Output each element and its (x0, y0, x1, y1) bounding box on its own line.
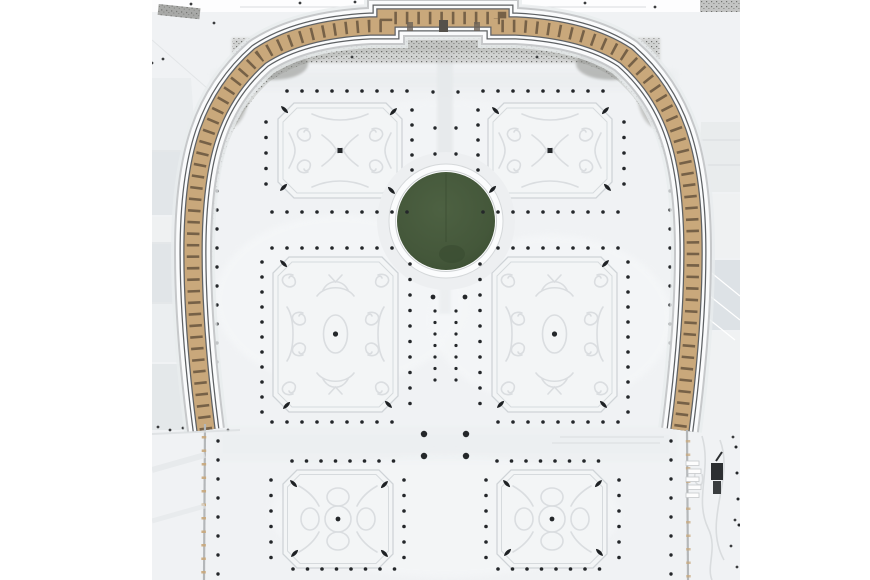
cross-path (216, 428, 676, 460)
central-door (439, 20, 448, 32)
tree-dot (669, 572, 672, 575)
tree-dot (511, 246, 515, 250)
tree-dot (260, 395, 264, 399)
tree-dot (539, 459, 543, 463)
tree-dot (390, 210, 394, 214)
tree-dot (433, 367, 436, 370)
tree-dot (402, 540, 406, 544)
tree-dot (264, 151, 268, 155)
tree-dot (410, 108, 414, 112)
tree-dot (478, 324, 482, 328)
tree-dot (478, 340, 482, 344)
tree-dot (348, 459, 352, 463)
tree-dot (586, 246, 590, 250)
tree-dot (556, 420, 560, 424)
tree-dot (270, 210, 274, 214)
ground-speck (299, 2, 302, 5)
tree-dot (478, 355, 482, 359)
tree-dot (571, 420, 575, 424)
aerial-photo-canvas (0, 0, 870, 580)
tree-dot (738, 524, 741, 527)
tree-dot (622, 136, 626, 140)
tree-dot (511, 420, 515, 424)
tree-dot (216, 572, 219, 575)
tree-dot (330, 246, 334, 250)
tree-dot (568, 459, 572, 463)
tree-dot (586, 420, 590, 424)
parterre-bed-bottom-right (497, 470, 607, 568)
tree-dot (569, 567, 573, 571)
tree-dot (484, 478, 488, 482)
tree-dot (270, 246, 274, 250)
tree-dot (478, 371, 482, 375)
tree-dot (622, 182, 626, 186)
tree-dot (300, 210, 304, 214)
tree-dot (433, 126, 436, 129)
tree-dot (390, 420, 394, 424)
tree-dot (478, 262, 482, 266)
tree-dot (405, 210, 409, 214)
tree-dot (300, 420, 304, 424)
ground-speck (584, 2, 587, 5)
tree-dot (260, 380, 264, 384)
tree-dot (478, 293, 482, 297)
ground-speck (536, 56, 539, 59)
tree-dot (433, 152, 436, 155)
tree-dot (360, 246, 364, 250)
ground-speck (162, 58, 165, 61)
tree-dot (408, 340, 412, 344)
tree-dot (433, 378, 436, 381)
roof-service-strip (700, 0, 740, 12)
tree-dot (300, 89, 304, 93)
tree-dot (601, 89, 605, 93)
tree-dot (216, 515, 219, 518)
tree-dot (526, 89, 530, 93)
tree-dot (496, 246, 500, 250)
tree-dot (378, 567, 382, 571)
tree-dot (484, 556, 488, 560)
tree-dot (260, 410, 264, 414)
tree-dot (476, 153, 480, 157)
tree-dot (260, 365, 264, 369)
tree-dot (526, 246, 530, 250)
tree-dot (264, 120, 268, 124)
tree-dot (402, 494, 406, 498)
tree-dot (526, 210, 530, 214)
tree-dot (541, 246, 545, 250)
tree-dot (269, 494, 273, 498)
bed-center-marker (552, 331, 557, 336)
tree-dot (216, 439, 219, 442)
tree-dot (264, 136, 268, 140)
tree-dot (669, 534, 672, 537)
tree-dot (626, 305, 630, 309)
tree-dot (571, 89, 575, 93)
tree-dot (408, 371, 412, 375)
tree-dot (626, 260, 630, 264)
tree-dot (496, 420, 500, 424)
tree-dot (269, 525, 273, 529)
tree-dot (408, 278, 412, 282)
tree-dot (375, 210, 379, 214)
tree-dot (360, 89, 364, 93)
tree-dot (345, 89, 349, 93)
pond-dark-patch (439, 245, 465, 263)
tree-dot (330, 420, 334, 424)
tree-dot (315, 246, 319, 250)
tree-dot (216, 458, 219, 461)
tree-dot (375, 89, 379, 93)
tree-dot (454, 321, 457, 324)
tree-dot (454, 367, 457, 370)
tree-dot (433, 344, 436, 347)
tree-dot (260, 260, 264, 264)
ground-speck (151, 62, 154, 65)
tree-dot (476, 108, 480, 112)
tree-dot (586, 210, 590, 214)
tree-dot (736, 472, 739, 475)
tree-dot (481, 89, 485, 93)
bed-center-marker (338, 148, 343, 153)
tree-dot (433, 355, 436, 358)
tree-dot (363, 459, 367, 463)
ground-speck (732, 436, 735, 439)
bed-center-marker (336, 517, 341, 522)
tree-dot (421, 431, 427, 437)
parterre-bed-bottom-left (283, 470, 393, 568)
tree-dot (511, 89, 515, 93)
tree-dot (264, 182, 268, 186)
tree-dot (260, 305, 264, 309)
tree-dot (377, 459, 381, 463)
bed-center-marker (550, 517, 555, 522)
tree-dot (616, 420, 620, 424)
tree-dot (616, 210, 620, 214)
tree-dot (269, 556, 273, 560)
tree-dot (345, 246, 349, 250)
tree-dot (215, 246, 218, 249)
tree-dot (597, 459, 601, 463)
tree-dot (431, 90, 434, 93)
tree-dot (216, 477, 219, 480)
tree-dot (496, 89, 500, 93)
tree-dot (290, 459, 294, 463)
ground-speck (213, 22, 216, 25)
tree-dot (264, 167, 268, 171)
tree-dot (393, 567, 397, 571)
tree-dot (484, 509, 488, 513)
tree-dot (617, 525, 621, 529)
tree-dot (626, 365, 630, 369)
tree-dot (463, 453, 469, 459)
tree-dot (408, 386, 412, 390)
tree-dot (617, 509, 621, 513)
tree-dot (405, 89, 409, 93)
tree-dot (269, 478, 273, 482)
tree-dot (454, 378, 457, 381)
tree-dot (408, 355, 412, 359)
tree-dot (481, 210, 485, 214)
tree-dot (525, 567, 529, 571)
tree-dot (408, 262, 412, 266)
tree-dot (571, 210, 575, 214)
tree-dot (553, 459, 557, 463)
tree-dot (390, 89, 394, 93)
tree-dot (541, 210, 545, 214)
tree-dot (511, 567, 515, 571)
tree-dot (285, 246, 289, 250)
tree-dot (540, 567, 544, 571)
tree-dot (526, 420, 530, 424)
tree-dot (476, 138, 480, 142)
tree-dot (454, 332, 457, 335)
tree-dot (285, 420, 289, 424)
tree-dot (364, 567, 368, 571)
tree-dot (484, 525, 488, 529)
tree-dot (669, 439, 672, 442)
tree-dot (454, 355, 457, 358)
bed-center-marker (548, 148, 553, 153)
tree-dot (300, 246, 304, 250)
ground-speck (736, 566, 739, 569)
tree-dot (626, 380, 630, 384)
tree-dot (291, 567, 295, 571)
tree-dot (601, 210, 605, 214)
tree-dot (408, 402, 412, 406)
tree-dot (669, 477, 672, 480)
tree-dot (345, 210, 349, 214)
tree-dot (260, 290, 264, 294)
tree-dot (484, 540, 488, 544)
ground-speck (148, 427, 151, 430)
tree-dot (215, 265, 218, 268)
tree-dot (601, 420, 605, 424)
tree-dot (390, 246, 394, 250)
tree-dot (586, 89, 590, 93)
tree-dot (478, 309, 482, 313)
tree-dot (454, 344, 457, 347)
tree-dot (260, 275, 264, 279)
tree-dot (496, 210, 500, 214)
tree-dot (215, 284, 218, 287)
tree-dot (626, 350, 630, 354)
tree-dot (556, 246, 560, 250)
tree-dot (269, 540, 273, 544)
tree-dot (571, 246, 575, 250)
tree-dot (215, 227, 218, 230)
tree-dot (216, 534, 219, 537)
tree-dot (556, 89, 560, 93)
tree-dot (524, 459, 528, 463)
tree-dot (476, 123, 480, 127)
tree-dot (617, 494, 621, 498)
tree-dot (285, 89, 289, 93)
tree-dot (484, 494, 488, 498)
tree-dot (616, 246, 620, 250)
tree-dot (478, 278, 482, 282)
tree-dot (410, 168, 414, 172)
ground-speck (734, 519, 737, 522)
tree-dot (315, 420, 319, 424)
tree-dot (626, 320, 630, 324)
tree-dot (408, 309, 412, 313)
tree-dot (617, 556, 621, 560)
tree-dot (319, 459, 323, 463)
tree-dot (402, 556, 406, 560)
tree-dot (285, 210, 289, 214)
tree-dot (315, 89, 319, 93)
tree-dot (270, 420, 274, 424)
tree-dot (476, 168, 480, 172)
tree-dot (334, 459, 338, 463)
tree-dot (496, 567, 500, 571)
tree-dot (626, 275, 630, 279)
parterre-bed-upper-right (488, 103, 612, 198)
parterre-bed-middle-left (273, 257, 398, 412)
tree-dot (622, 151, 626, 155)
tree-dot (622, 167, 626, 171)
tree-dot (617, 478, 621, 482)
tree-dot (669, 515, 672, 518)
tree-dot (330, 89, 334, 93)
tree-dot (410, 153, 414, 157)
tree-dot (617, 540, 621, 544)
tree-dot (541, 89, 545, 93)
tree-dot (408, 293, 412, 297)
tree-dot (454, 309, 457, 312)
tree-dot (737, 498, 740, 501)
tree-dot (463, 295, 468, 300)
tree-dot (601, 246, 605, 250)
tree-dot (454, 152, 457, 155)
tree-dot (582, 459, 586, 463)
tree-dot (402, 509, 406, 513)
parterre-bed-middle-right (492, 257, 617, 412)
tree-dot (622, 120, 626, 124)
tree-dot (556, 210, 560, 214)
tree-dot (433, 321, 436, 324)
parterre-bed-upper-left (278, 103, 402, 198)
tree-dot (330, 210, 334, 214)
ground-speck (354, 1, 357, 4)
tree-dot (315, 210, 319, 214)
tree-dot (375, 246, 379, 250)
tree-dot (478, 386, 482, 390)
ground-speck (190, 3, 193, 6)
tree-dot (349, 567, 353, 571)
tree-dot (431, 295, 436, 300)
tree-dot (669, 553, 672, 556)
tree-dot (495, 459, 499, 463)
tree-dot (421, 453, 427, 459)
tree-dot (669, 458, 672, 461)
tree-dot (260, 335, 264, 339)
ground-speck (169, 429, 172, 432)
pond (377, 152, 515, 290)
tree-dot (392, 459, 396, 463)
ground-speck (730, 545, 733, 548)
tree-dot (410, 123, 414, 127)
tree-dot (402, 478, 406, 482)
tree-dot (320, 567, 324, 571)
tree-dot (260, 320, 264, 324)
tree-dot (454, 126, 457, 129)
tree-dot (669, 496, 672, 499)
tree-dot (510, 459, 514, 463)
tree-dot (305, 459, 309, 463)
aerial-photo (0, 0, 870, 580)
tree-dot (216, 496, 219, 499)
tree-dot (626, 290, 630, 294)
side-door-right (474, 22, 480, 31)
tree-dot (541, 420, 545, 424)
bed-center-marker (333, 331, 338, 336)
tree-dot (626, 395, 630, 399)
tree-dot (360, 210, 364, 214)
tree-dot (410, 138, 414, 142)
tree-dot (216, 553, 219, 556)
tree-dot (626, 335, 630, 339)
tree-dot (511, 210, 515, 214)
tree-dot (478, 402, 482, 406)
tree-dot (402, 525, 406, 529)
tree-dot (626, 410, 630, 414)
tree-dot (433, 332, 436, 335)
tree-dot (375, 420, 379, 424)
ground-speck (654, 6, 657, 9)
tree-dot (456, 90, 459, 93)
tree-dot (269, 509, 273, 513)
tree-dot (554, 567, 558, 571)
tree-dot (433, 309, 436, 312)
tree-dot (306, 567, 310, 571)
tree-dot (335, 567, 339, 571)
tree-dot (345, 420, 349, 424)
ground-speck (351, 56, 354, 59)
tree-dot (583, 567, 587, 571)
tree-dot (408, 324, 412, 328)
tree-dot (463, 431, 469, 437)
ground-speck (157, 426, 160, 429)
side-door-left (407, 22, 413, 31)
tree-dot (360, 420, 364, 424)
tree-dot (735, 446, 738, 449)
tree-dot (260, 350, 264, 354)
tree-dot (598, 567, 602, 571)
